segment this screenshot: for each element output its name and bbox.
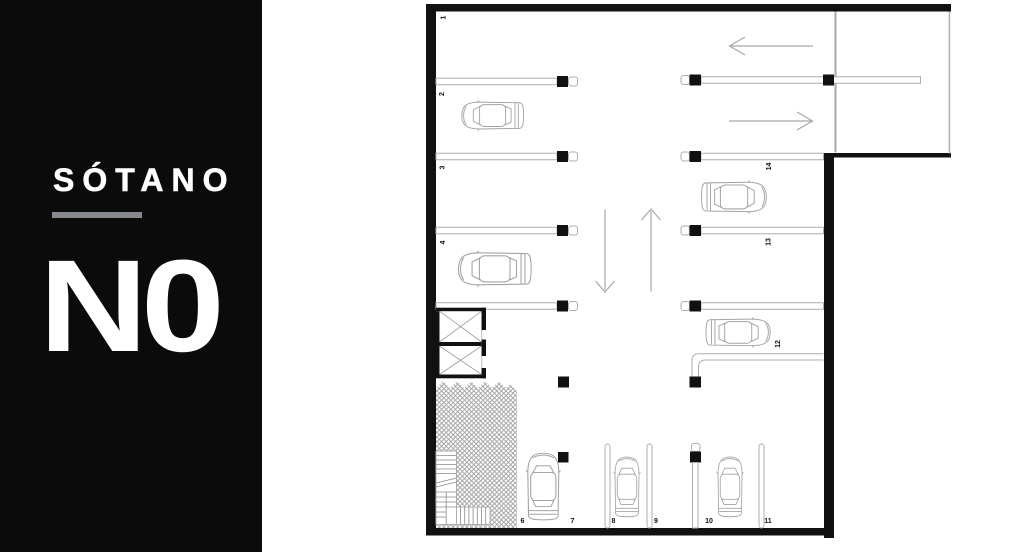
svg-text:11: 11 — [764, 518, 772, 525]
svg-text:6: 6 — [521, 518, 525, 525]
svg-text:12: 12 — [775, 340, 782, 348]
svg-text:1: 1 — [441, 15, 448, 19]
svg-text:4: 4 — [440, 240, 447, 244]
svg-text:13: 13 — [766, 238, 773, 246]
svg-text:7: 7 — [571, 518, 575, 525]
svg-text:9: 9 — [654, 518, 658, 525]
svg-text:8: 8 — [612, 518, 616, 525]
svg-text:14: 14 — [766, 163, 773, 171]
svg-text:10: 10 — [705, 518, 713, 525]
svg-text:2: 2 — [439, 92, 446, 96]
svg-text:3: 3 — [440, 165, 447, 169]
